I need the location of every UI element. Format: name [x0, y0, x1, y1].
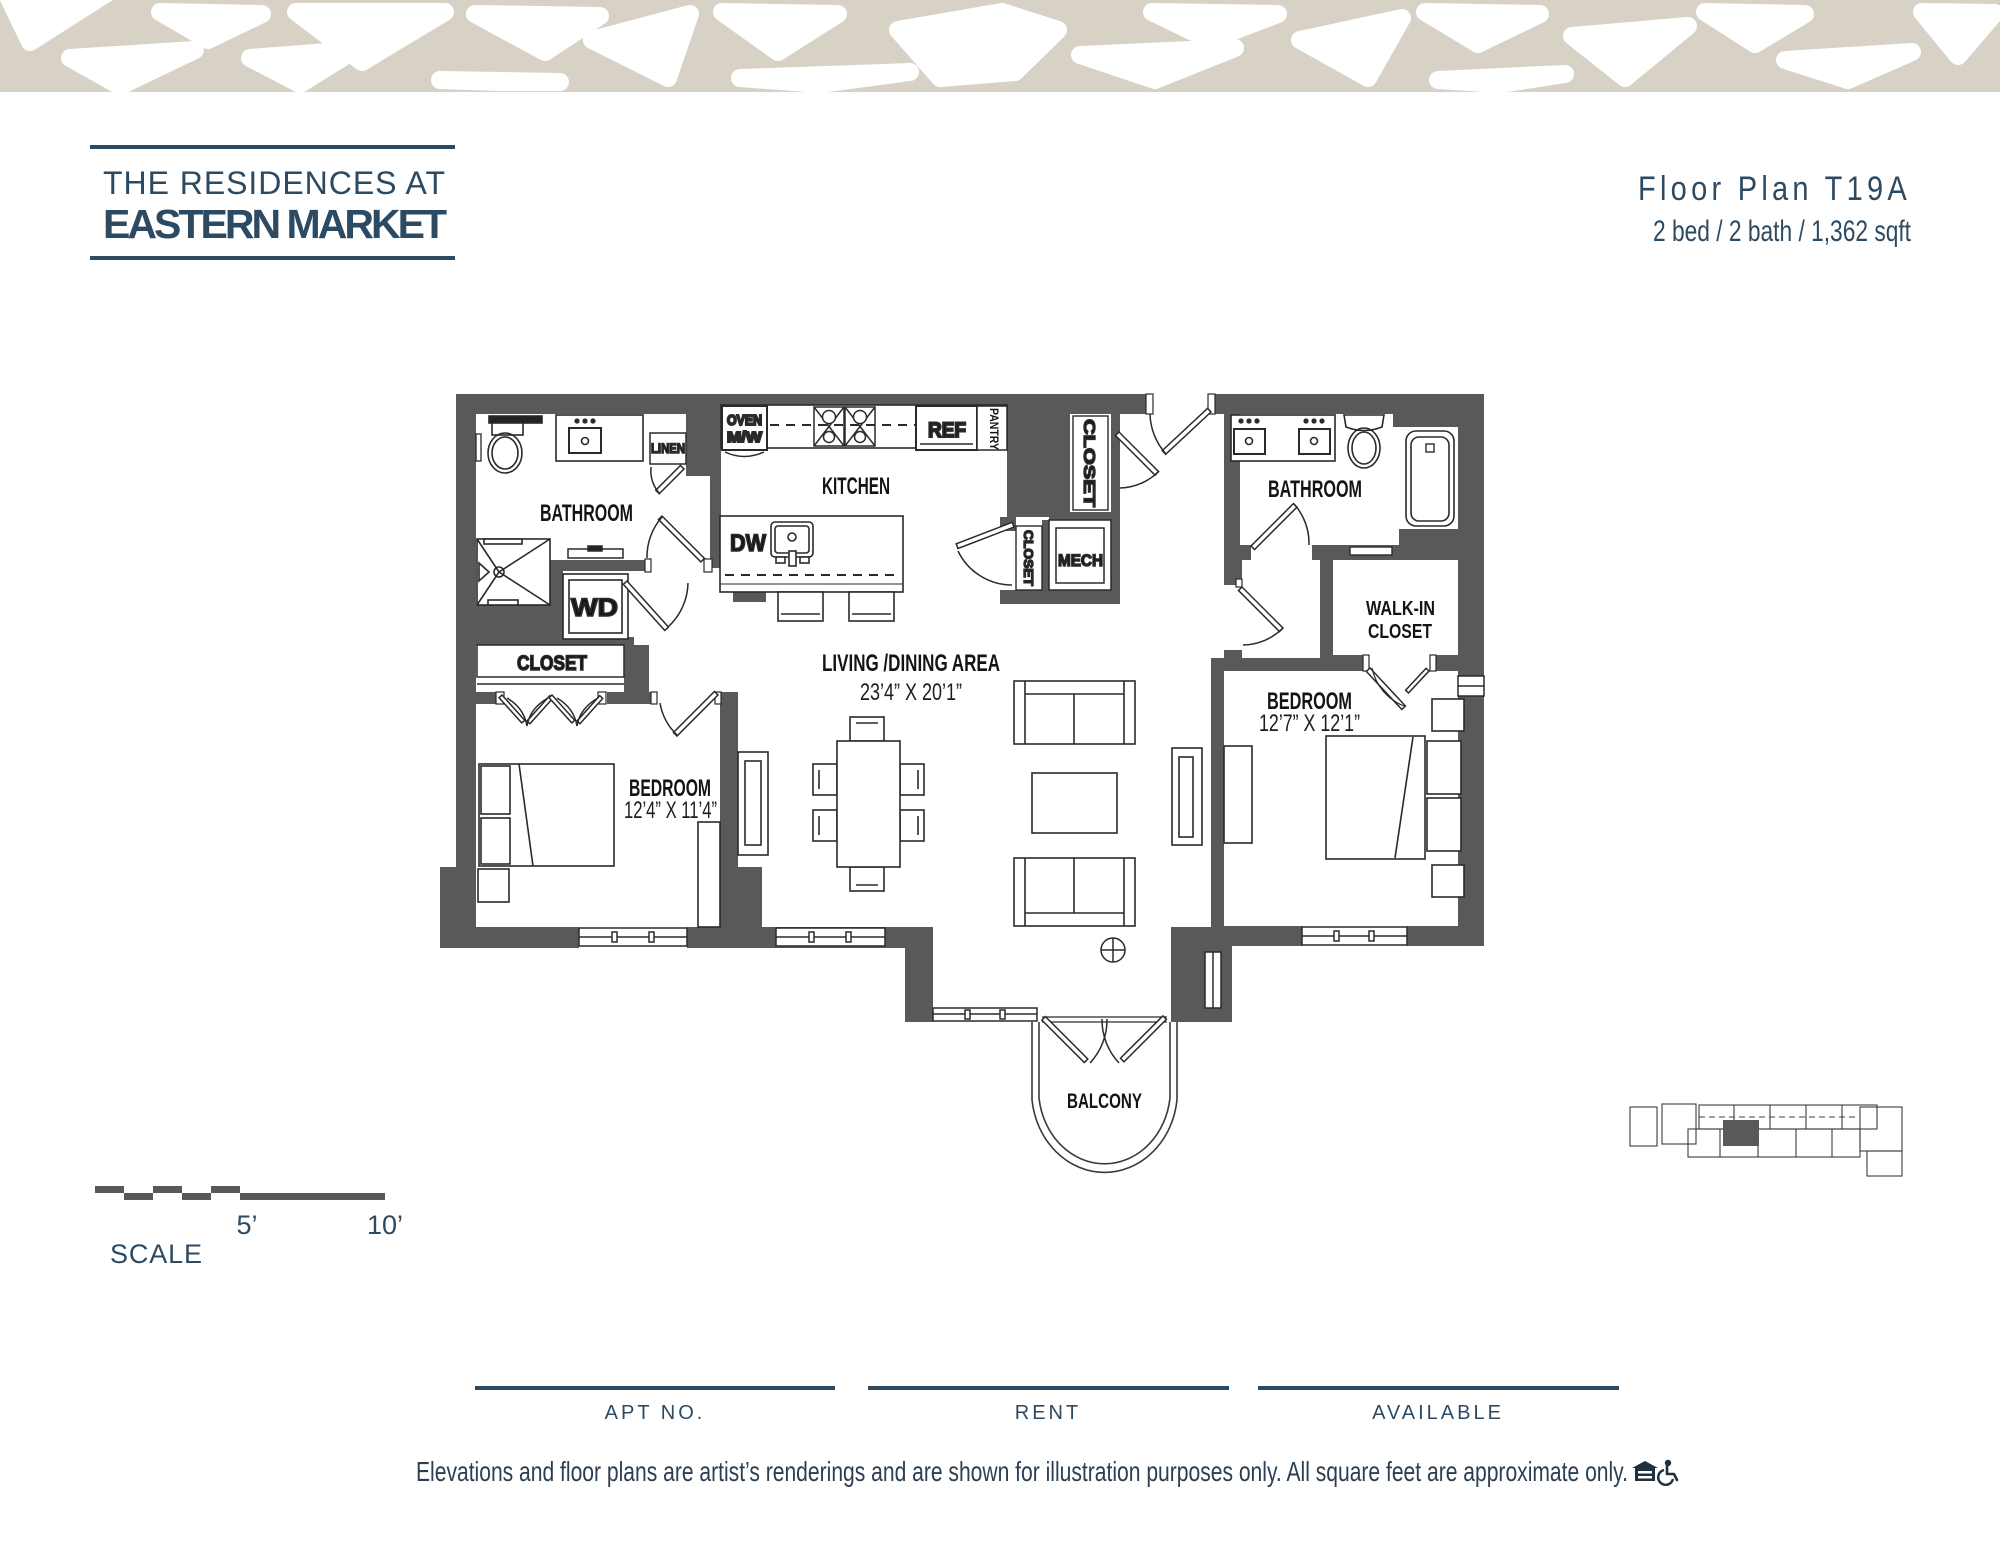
svg-text:THE RESIDENCES AT: THE RESIDENCES AT — [103, 165, 448, 201]
svg-text:5’: 5’ — [236, 1210, 257, 1240]
svg-text:BATHROOM: BATHROOM — [1268, 476, 1362, 503]
svg-text:CLOSET: CLOSET — [1368, 621, 1432, 643]
svg-text:KITCHEN: KITCHEN — [822, 473, 890, 500]
svg-text:10’: 10’ — [367, 1210, 403, 1240]
svg-text:12’7” X 12’1”: 12’7” X 12’1” — [1259, 710, 1360, 737]
svg-text:EASTERN MARKET: EASTERN MARKET — [103, 201, 448, 247]
svg-text:AVAILABLE: AVAILABLE — [1372, 1402, 1504, 1424]
svg-text:APT NO.: APT NO. — [605, 1402, 706, 1424]
svg-text:CLOSET: CLOSET — [1080, 419, 1097, 507]
svg-text:23’4” X 20’1”: 23’4” X 20’1” — [860, 679, 962, 706]
svg-text:RENT: RENT — [1015, 1402, 1081, 1424]
svg-text:MECH: MECH — [1058, 551, 1103, 570]
svg-text:Elevations and floor plans are: Elevations and floor plans are artist’s … — [416, 1456, 1628, 1487]
svg-text:LIVING /DINING AREA: LIVING /DINING AREA — [822, 650, 1000, 677]
svg-text:WALK-IN: WALK-IN — [1366, 598, 1435, 620]
svg-text:CLOSET: CLOSET — [1021, 530, 1036, 586]
svg-text:OVEN: OVEN — [727, 412, 762, 429]
svg-text:SCALE: SCALE — [110, 1239, 202, 1269]
svg-text:Floor Plan T19A: Floor Plan T19A — [1638, 170, 1911, 208]
svg-text:LINEN: LINEN — [651, 440, 685, 456]
svg-text:CLOSET: CLOSET — [517, 652, 587, 675]
svg-text:REF: REF — [928, 419, 966, 442]
svg-text:WD: WD — [571, 594, 618, 622]
svg-text:BATHROOM: BATHROOM — [540, 500, 633, 527]
svg-text:BALCONY: BALCONY — [1067, 1090, 1142, 1113]
svg-text:12’4” X 11’4”: 12’4” X 11’4” — [624, 797, 717, 824]
svg-text:2 bed / 2 bath / 1,362 sqft: 2 bed / 2 bath / 1,362 sqft — [1653, 215, 1911, 248]
svg-text:PANTRY: PANTRY — [987, 408, 1001, 450]
svg-text:M/W: M/W — [727, 429, 763, 446]
svg-text:DW: DW — [730, 530, 766, 557]
